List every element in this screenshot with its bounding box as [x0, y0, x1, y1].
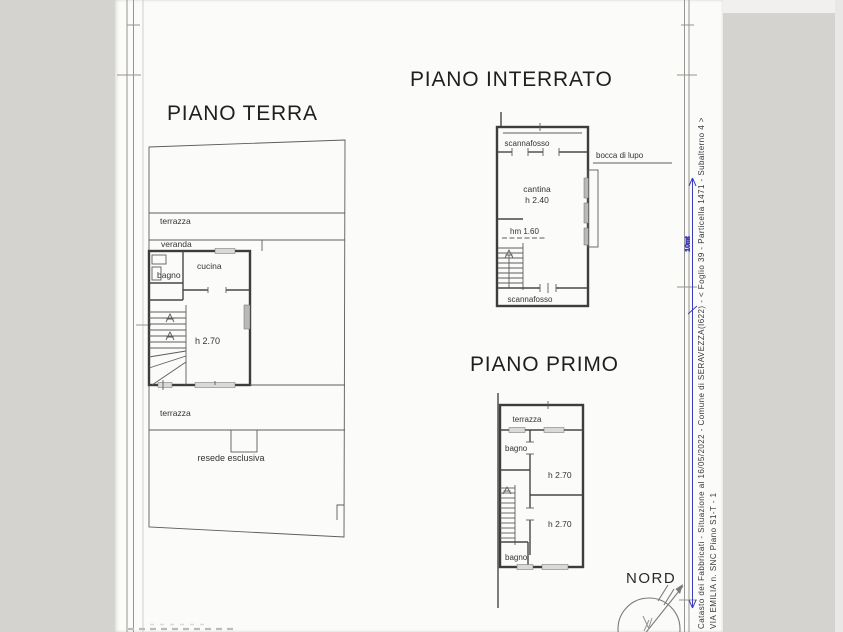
- light-well-label: bocca di lupo: [596, 151, 644, 160]
- ground-room-height-label: h 2.70: [195, 336, 220, 346]
- ground-veranda-label: veranda: [161, 239, 192, 249]
- cadastral-info-line: Catasto dei Fabbricati - Situazione al 1…: [697, 117, 706, 629]
- first-room2-height-label: h 2.70: [548, 519, 572, 529]
- window-icon: [584, 178, 589, 198]
- first-bathroom-top-label: bagno: [505, 444, 528, 453]
- window-icon: [542, 565, 568, 570]
- window-icon: [215, 249, 235, 254]
- ground-stairs: [149, 305, 186, 385]
- sheet-frame-lines: [117, 0, 697, 632]
- address-info-line: VIA EMILIA n. SNC Piano S1-T - 1: [709, 492, 718, 629]
- ground-terrace-bottom-label: terrazza: [160, 408, 191, 418]
- window-icon: [584, 203, 589, 223]
- basement-bottom-crawl-wall: [497, 283, 588, 293]
- parcel-notch: [337, 505, 344, 520]
- mean-height-label: hm 1.60: [510, 227, 539, 236]
- window-icon: [244, 305, 250, 329]
- north-compass-icon: NORD: [618, 570, 683, 632]
- first-bathroom-bottom-label: bagno: [505, 553, 528, 562]
- door-icon: [509, 428, 525, 433]
- first-floor-stairs: [500, 485, 515, 545]
- cellar-height-label: h 2.40: [525, 195, 549, 205]
- basement-outer-walls: [497, 127, 588, 306]
- light-well-shaft: [588, 170, 598, 247]
- garden-step: [231, 430, 257, 452]
- ground-terrace-top-label: terrazza: [160, 216, 191, 226]
- north-arrowhead-icon: [676, 584, 684, 594]
- window-icon: [584, 228, 589, 245]
- scanned-floorplan-sheet: 10mt Catasto dei Fabbricati - Situazione…: [0, 0, 843, 632]
- exclusive-garden-label: resede esclusiva: [197, 453, 264, 463]
- cellar-label: cantina: [523, 184, 551, 194]
- first-room1-height-label: h 2.70: [548, 470, 572, 480]
- basement-title: PIANO INTERRATO: [410, 68, 613, 91]
- basement-stairs: [498, 243, 523, 290]
- first-floor-plan: PIANO PRIMO terrazza bagno: [470, 353, 619, 608]
- floorplan-drawing: 10mt Catasto dei Fabbricati - Situazione…: [0, 0, 843, 632]
- window-icon: [544, 428, 564, 433]
- faint-bottom-note-artifact: [128, 625, 235, 630]
- ground-bathroom-label: bagno: [157, 270, 181, 280]
- north-label: NORD: [626, 570, 676, 587]
- blue-dimension-label: 10mt: [685, 236, 692, 251]
- first-floor-title: PIANO PRIMO: [470, 353, 619, 376]
- ground-floor-plan: PIANO TERRA terrazza veranda: [149, 102, 345, 537]
- parcel-boundary: [149, 140, 345, 537]
- ground-floor-title: PIANO TERRA: [167, 102, 318, 125]
- window-icon: [517, 565, 533, 570]
- basement-plan: PIANO INTERRATO scannafosso bocca di lup…: [410, 68, 672, 306]
- first-terrace-label: terrazza: [513, 415, 542, 424]
- blue-dimension-line: 10mt: [685, 178, 698, 608]
- basement-crawlspace-bottom-label: scannafosso: [508, 295, 553, 304]
- window-icon: [158, 383, 172, 388]
- cadastral-margin-text: Catasto dei Fabbricati - Situazione al 1…: [697, 117, 718, 629]
- basement-crawlspace-top-label: scannafosso: [505, 139, 550, 148]
- ground-kitchen-label: cucina: [197, 261, 222, 271]
